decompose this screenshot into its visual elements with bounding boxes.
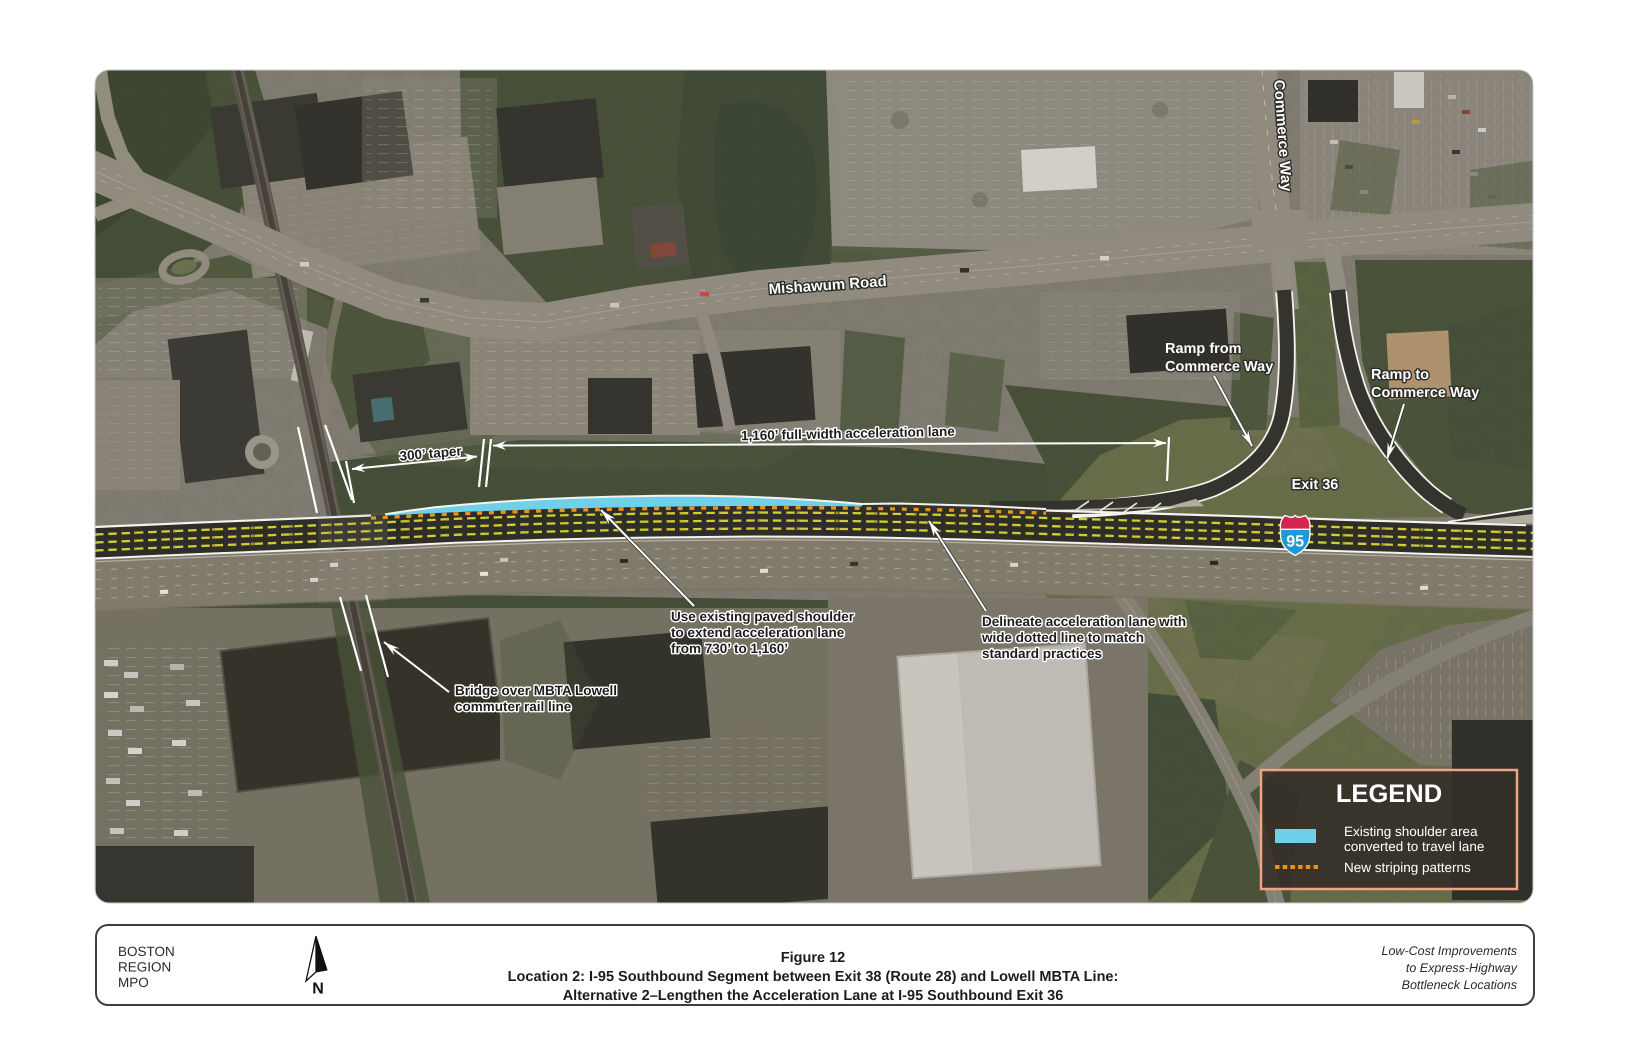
svg-text:Bottleneck Locations: Bottleneck Locations <box>1402 978 1517 992</box>
svg-text:N: N <box>312 981 324 998</box>
svg-text:Figure 12: Figure 12 <box>781 950 845 966</box>
svg-text:New striping patterns: New striping patterns <box>1344 860 1471 875</box>
svg-text:standard practices: standard practices <box>982 646 1102 661</box>
svg-text:Low-Cost Improvements: Low-Cost Improvements <box>1382 944 1517 958</box>
svg-text:Commerce Way: Commerce Way <box>1165 359 1273 375</box>
svg-text:Use existing paved shoulder: Use existing paved shoulder <box>671 609 855 624</box>
svg-text:Delineate acceleration lane wi: Delineate acceleration lane with <box>982 614 1186 629</box>
svg-text:Alternative 2–Lengthen the Acc: Alternative 2–Lengthen the Acceleration … <box>563 988 1064 1004</box>
svg-text:Bridge over MBTA Lowell: Bridge over MBTA Lowell <box>455 683 617 698</box>
svg-text:MPO: MPO <box>118 975 149 990</box>
svg-text:LEGEND: LEGEND <box>1336 780 1442 808</box>
svg-text:Ramp from: Ramp from <box>1165 341 1242 357</box>
svg-text:BOSTON: BOSTON <box>118 944 175 959</box>
svg-text:Exit 36: Exit 36 <box>1292 477 1339 493</box>
svg-text:Location 2: I-95 Southbound Se: Location 2: I-95 Southbound Segment betw… <box>508 969 1119 985</box>
svg-text:to extend acceleration lane: to extend acceleration lane <box>671 625 845 640</box>
svg-text:Commerce Way: Commerce Way <box>1371 385 1479 401</box>
svg-text:REGION: REGION <box>118 960 171 975</box>
svg-text:converted to travel lane: converted to travel lane <box>1344 839 1484 854</box>
svg-text:commuter rail line: commuter rail line <box>455 699 572 714</box>
svg-text:wide dotted line to match: wide dotted line to match <box>981 630 1144 645</box>
svg-text:Existing shoulder area: Existing shoulder area <box>1344 824 1478 839</box>
svg-text:Ramp to: Ramp to <box>1371 367 1429 383</box>
svg-text:from 730’ to 1,160’: from 730’ to 1,160’ <box>671 641 788 656</box>
svg-text:to Express-Highway: to Express-Highway <box>1406 961 1518 975</box>
svg-text:95: 95 <box>1286 532 1304 550</box>
